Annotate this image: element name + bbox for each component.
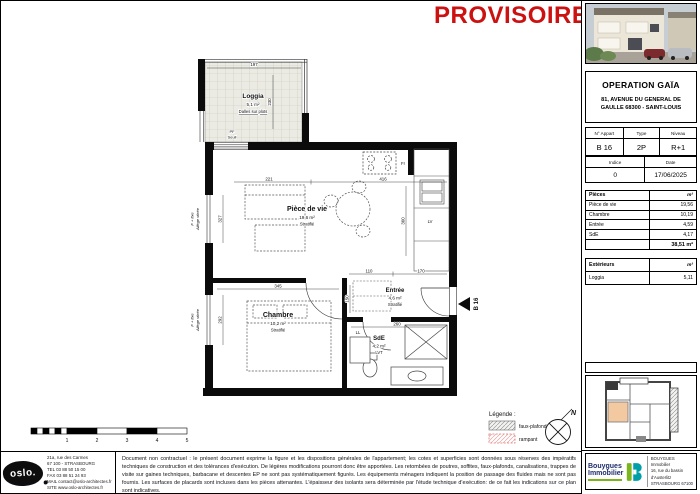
scale-bar <box>31 428 187 434</box>
loggia-door-opening <box>214 143 248 150</box>
washbasin <box>391 367 443 385</box>
apartment-table: N° Appart Type Niveau B 16 2P R+1 <box>585 127 697 156</box>
legend-swatch-false-ceiling <box>489 421 515 430</box>
pf-label: PF <box>229 129 235 134</box>
apartment-number-value: B 16 <box>586 138 623 155</box>
loggia-terrace <box>198 59 309 143</box>
revision-table: Indice Date 0 17/06/2025 <box>585 156 697 183</box>
developer-brand-line1: Bouygues <box>588 463 623 470</box>
architect-block: oslo. 21a, rue des Carmes 67 100 - STRAS… <box>1 452 116 494</box>
apartment-number-header: N° Appart <box>586 128 623 138</box>
scale-bar-labels: 1 2 3 4 5 <box>66 438 189 444</box>
fridge-label: Fr <box>401 161 406 166</box>
architect-website: SITE www.oslo-architectes.fr <box>47 485 112 491</box>
room-name-loggia: Loggia <box>242 93 264 100</box>
dim-loggia-width: 197 <box>250 62 258 67</box>
logo-dot <box>44 480 48 484</box>
date-header: Date <box>644 157 696 167</box>
svg-text:3: 3 <box>126 438 129 444</box>
window1-label: F + fixe <box>190 212 195 226</box>
dim-sde-width: 260 <box>393 322 401 327</box>
project-title: OPERATION GAÏA <box>586 80 696 90</box>
room-area-bedroom: 10,2 m² <box>270 321 286 326</box>
developer-address-line1: BOUYGUES Immobilier <box>651 456 694 469</box>
exterior-header-label: Extérieurs <box>586 262 649 268</box>
developer-logo-mark <box>626 460 644 484</box>
washer-label: LL <box>356 330 361 335</box>
room-row-area: 4,17 <box>649 230 696 239</box>
room-row-label: Chambre <box>586 212 649 218</box>
index-value: 0 <box>586 167 644 182</box>
north-compass: N <box>546 409 578 445</box>
exterior-header-unit: m² <box>649 259 696 271</box>
dim-window-bottom: 292 <box>218 316 223 324</box>
svg-text:1: 1 <box>66 438 69 444</box>
entry-closet <box>353 281 391 311</box>
exterior-area-table: Extérieurs m² Loggia 5,11 <box>585 258 697 285</box>
rooms-header-label: Pièces <box>586 192 649 198</box>
architect-logo: oslo. <box>2 459 44 487</box>
date-value: 17/06/2025 <box>644 167 696 182</box>
project-address-line1: 81, AVENUE DU GENERAL DE <box>586 96 696 104</box>
legend: Légende : faux-plafond rampant <box>489 412 547 443</box>
room-row-area: 10,19 <box>649 211 696 220</box>
legend-label-false-ceiling: faux-plafond <box>519 424 547 430</box>
dim-entry-a: 110 <box>366 269 374 274</box>
dishwasher-label: LV <box>428 219 433 224</box>
room-area-entry: 4,6 m² <box>388 296 401 301</box>
table-row: Pièce de vie 19,56 <box>586 200 696 210</box>
room-finish-loggia: Dalles sur plots <box>239 109 268 114</box>
room-name-sde: SdE <box>373 336 385 342</box>
rooms-total-row: 38,51 m² <box>586 239 696 249</box>
unit-marker: B 16 <box>458 297 480 311</box>
rooms-header-unit: m² <box>649 191 696 200</box>
room-name-entry: Entrée <box>386 288 405 294</box>
title-block-sidebar: OPERATION GAÏA 81, AVENUE DU GENERAL DE … <box>581 1 700 494</box>
footer-divider <box>582 450 700 451</box>
room-row-area: 4,59 <box>649 220 696 229</box>
north-letter: N <box>571 410 577 417</box>
window2-label: F + fixe <box>190 313 195 327</box>
room-finish-living: Stratifié <box>300 222 315 227</box>
window-bedroom <box>205 295 213 345</box>
architect-address: 21a, rue des Carmes 67 100 - STRASBOURG … <box>47 455 112 491</box>
architect-logo-text: oslo. <box>10 467 37 480</box>
apartment-type-value: 2P <box>623 138 660 155</box>
dim-living-b: 416 <box>379 177 387 182</box>
rooms-table-header: Pièces m² <box>586 191 696 200</box>
dining-table <box>324 181 370 237</box>
sofa <box>245 185 305 251</box>
title-block-footer: oslo. 21a, rue des Carmes 67 100 - STRAS… <box>1 451 582 494</box>
room-row-area: 19,56 <box>649 201 696 210</box>
room-finish-sde: LVT <box>375 350 383 355</box>
project-info-box: OPERATION GAÏA 81, AVENUE DU GENERAL DE … <box>585 71 697 123</box>
room-row-label: Pièce de vie <box>586 202 649 208</box>
bedroom-door-arc <box>306 283 342 319</box>
room-finish-bedroom: Stratifié <box>271 328 286 333</box>
floor-plan: B 16 197 230 221 416 327 292 345 110 170… <box>1 1 581 451</box>
table-row: SdE 4,17 <box>586 229 696 239</box>
developer-green-stroke <box>588 479 622 481</box>
svg-text:4: 4 <box>156 438 159 444</box>
room-name-living: Pièce de vie <box>287 206 327 213</box>
project-address-line2: GAULLE 68300 - SAINT-LOUIS <box>586 104 696 112</box>
table-row: Chambre 10,19 <box>586 210 696 220</box>
developer-address-line3: STRASBOURG 67100 <box>651 481 694 487</box>
exterior-row-label: Loggia <box>586 275 649 281</box>
architect-email: MAIL contact@oslo-architectes.fr <box>47 479 112 485</box>
key-plan-drawing <box>586 376 697 447</box>
key-plan-highlighted-unit <box>608 402 628 422</box>
room-row-label: Entrée <box>586 222 649 228</box>
window-living <box>205 195 213 243</box>
divider <box>647 456 648 487</box>
shower <box>405 325 447 359</box>
seuil-label: Seuil <box>228 135 237 140</box>
developer-logo-text: Bouygues Immobilier <box>588 463 623 481</box>
window1-sublabel: Allège vitrée <box>195 207 200 231</box>
dim-entry-h: 150 <box>345 295 350 303</box>
apartment-type-header: Type <box>623 128 660 138</box>
table-row: Loggia 5,11 <box>586 271 696 284</box>
room-row-label: SdE <box>586 232 649 238</box>
building-photo <box>585 3 697 64</box>
empty-row <box>585 362 697 373</box>
developer-brand-line2: Immobilier <box>588 470 623 477</box>
room-area-living: 19,6 m² <box>299 215 315 220</box>
legend-swatch-sloped-ceiling <box>489 434 515 443</box>
dim-loggia-height: 230 <box>267 98 272 106</box>
svg-text:5: 5 <box>186 438 189 444</box>
dim-entry-b: 170 <box>417 269 425 274</box>
key-plan <box>585 375 697 448</box>
plan-sheet: PROVISOIRE <box>0 0 700 494</box>
entrance-opening <box>421 287 457 316</box>
dim-living-a: 221 <box>265 177 273 182</box>
table-row: Entrée 4,59 <box>586 219 696 229</box>
index-header: Indice <box>586 157 644 167</box>
developer-address: BOUYGUES Immobilier 16, rue du bassin d'… <box>651 456 694 487</box>
svg-text:2: 2 <box>96 438 99 444</box>
window-annotations: F + fixe Allège vitrée F + fixe Allège v… <box>190 207 201 332</box>
rooms-total-value: 38,51 m² <box>649 240 696 249</box>
exterior-row-area: 5,11 <box>649 272 696 284</box>
legend-label-sloped-ceiling: rampant <box>519 437 538 443</box>
room-name-bedroom: Chambre <box>263 312 293 319</box>
room-area-loggia: 5,1 m² <box>246 102 259 107</box>
dim-window-top: 327 <box>218 215 223 223</box>
legend-title: Légende : <box>489 412 516 418</box>
dim-kitchen-h: 360 <box>401 217 406 225</box>
project-address: 81, AVENUE DU GENERAL DE GAULLE 68300 - … <box>586 96 696 113</box>
washer-box <box>350 337 370 363</box>
rooms-area-table: Pièces m² Pièce de vie 19,56 Chambre 10,… <box>585 190 697 250</box>
room-area-sde: 4,2 m² <box>372 344 385 349</box>
window2-sublabel: Allège vitrée <box>195 308 200 332</box>
exterior-table-header: Extérieurs m² <box>586 259 696 271</box>
room-finish-entry: Stratifié <box>388 302 403 307</box>
apartment-level-header: Niveau <box>659 128 696 138</box>
building-photo-illustration <box>586 4 697 63</box>
legal-disclaimer: Document non contractuel : le présent do… <box>116 452 582 494</box>
unit-marker-label: B 16 <box>474 297 480 310</box>
developer-block: Bouygues Immobilier BOUYGUES Immobilier … <box>585 453 697 490</box>
apartment-level-value: R+1 <box>659 138 696 155</box>
dim-bedroom-width: 345 <box>274 284 282 289</box>
developer-address-line2: 16, rue du bassin d'Austerlitz <box>651 468 694 481</box>
